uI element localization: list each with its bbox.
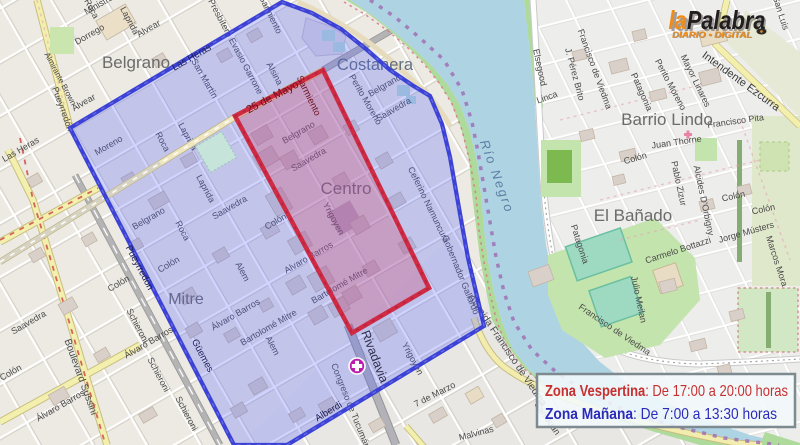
svg-text:Belgrano: Belgrano — [102, 53, 170, 72]
svg-text:Zona Mañana: De 7:00 a 13:30 h: Zona Mañana: De 7:00 a 13:30 horas — [545, 406, 777, 423]
svg-text:Zona Vespertina: De 17:00 a 20: Zona Vespertina: De 17:00 a 20:00 horas — [545, 383, 788, 400]
svg-text:Barrio Lindo: Barrio Lindo — [621, 110, 713, 129]
svg-text:El Bañado: El Bañado — [594, 206, 672, 225]
svg-text:DIARIO • DIGITAL: DIARIO • DIGITAL — [672, 30, 752, 40]
